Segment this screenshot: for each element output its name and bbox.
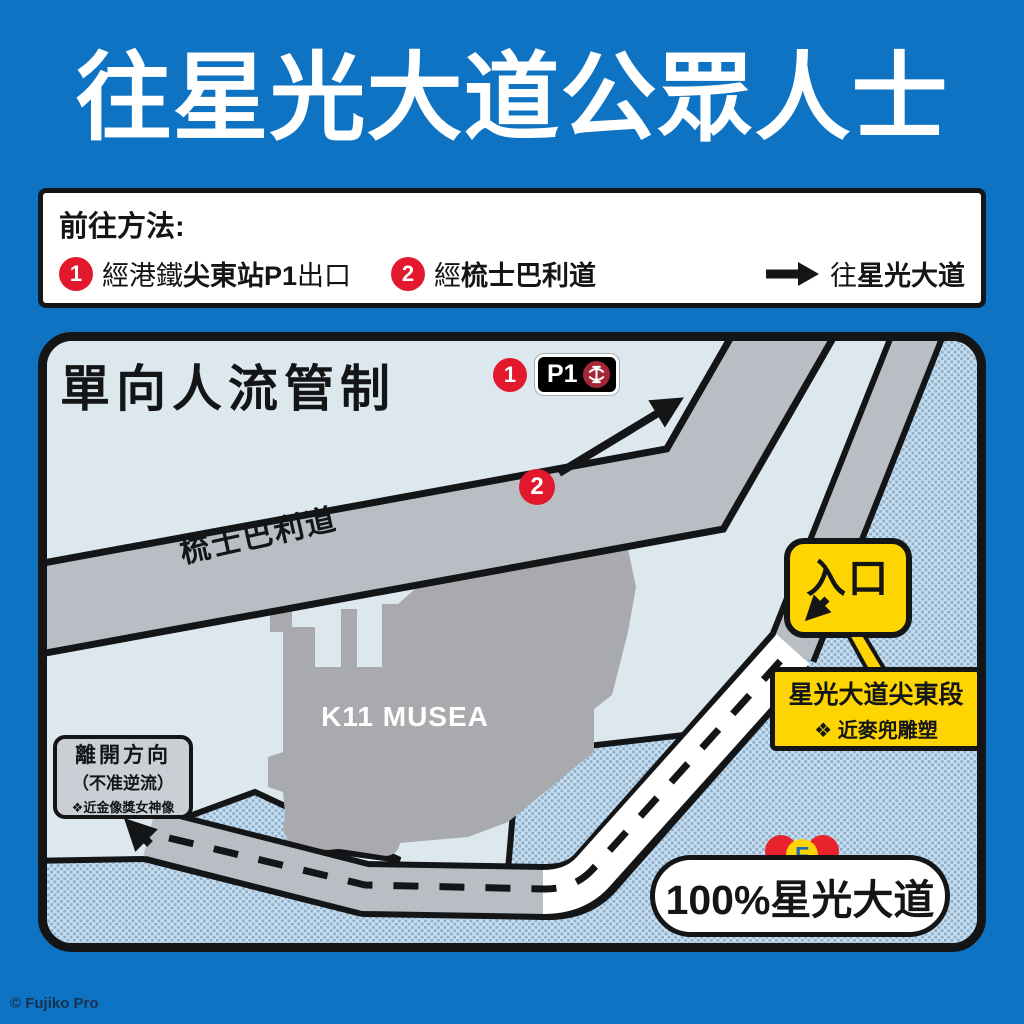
avenue-of-stars-pill: 100%星光大道 [650, 855, 950, 937]
p1-exit-marker: 1 P1 [493, 354, 619, 395]
exit-sign-note: ❖近金像獎女神像 [72, 797, 175, 816]
right-arrow-icon [764, 260, 820, 288]
map-marker-2-badge: 2 [519, 469, 555, 505]
instructions-row: 1 經港鐵尖東站P1出口 2 經梳士巴利道 往星光大道 [59, 254, 965, 293]
poster: 往星光大道公眾人士 前往方法: 1 經港鐵尖東站P1出口 2 經梳士巴利道 往星… [0, 0, 1024, 1024]
entrance-info-note: ❖ 近麥兜雕塑 [814, 714, 938, 743]
step-1-badge: 1 [59, 257, 93, 291]
instructions-box: 前往方法: 1 經港鐵尖東站P1出口 2 經梳士巴利道 往星光大道 [38, 188, 986, 308]
page-title: 往星光大道公眾人士 [0, 20, 1024, 159]
map-marker-1-badge: 1 [493, 358, 527, 392]
map-panel: 單向人流管制 1 P1 2 [38, 332, 986, 952]
entrance-bubble: 入口 [784, 538, 912, 638]
exit-sign-title: 離開方向 [75, 739, 171, 769]
k11-building-label: K11 MUSEA [315, 701, 495, 733]
entrance-arrow-icon [798, 592, 834, 628]
instructions-heading: 前往方法: [59, 203, 965, 245]
copyright-text: © Fujiko Pro [10, 995, 99, 1012]
step-2-text: 經梳士巴利道 [434, 254, 596, 293]
mtr-exit-sign: P1 [535, 354, 619, 395]
map-heading: 單向人流管制 [60, 349, 396, 421]
entrance-info-box: 星光大道尖東段 ❖ 近麥兜雕塑 [770, 667, 982, 751]
step-2-badge: 2 [391, 257, 425, 291]
destination-text: 往星光大道 [830, 254, 965, 293]
step-1-text: 經港鐵尖東站P1出口 [102, 254, 351, 293]
p1-exit-label: P1 [547, 360, 578, 389]
exit-sign: 離開方向 （不准逆流） ❖近金像獎女神像 [53, 735, 193, 819]
mtr-logo-icon [583, 361, 610, 388]
avenue-pill-label: 100%星光大道 [666, 866, 935, 926]
entrance-info-title: 星光大道尖東段 [788, 675, 963, 711]
exit-sign-subtitle: （不准逆流） [72, 769, 174, 794]
